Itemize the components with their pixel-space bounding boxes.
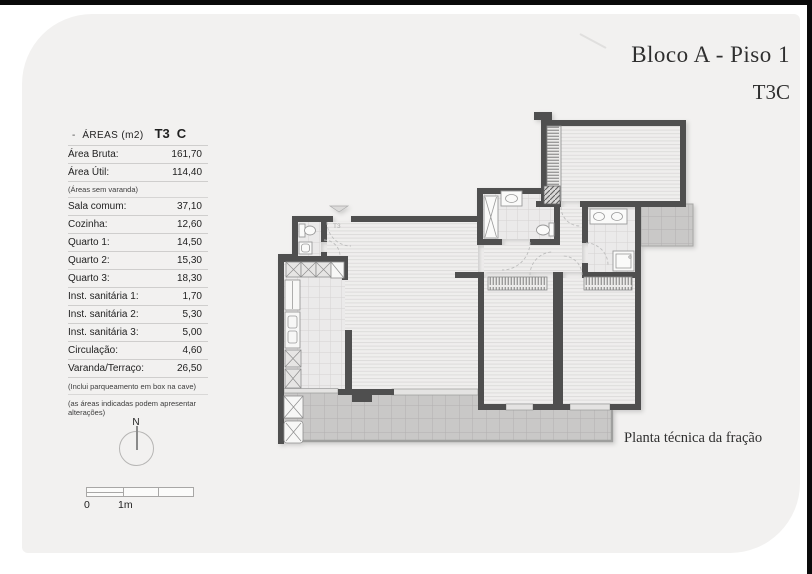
kitchen-balcony-door: [284, 389, 338, 394]
header-title: ÁREAS (m2): [82, 130, 143, 141]
row-value: 18,30: [177, 273, 208, 284]
bedroom1-wardrobe: [488, 277, 547, 290]
bedroom2-wardrobe: [584, 277, 632, 290]
row-value: 14,50: [177, 237, 208, 248]
double-sink-counter: [590, 209, 627, 224]
toilet: [537, 225, 550, 235]
row-label: Quarto 1:: [68, 237, 110, 248]
scan-edge-right: [807, 0, 812, 574]
row-value: 1,70: [183, 291, 208, 302]
table-row: Inst. sanitária 2: 5,30: [68, 306, 208, 324]
sink: [501, 191, 522, 206]
row-value: 114,40: [172, 167, 208, 178]
scale-bar: 0 1m: [86, 487, 194, 511]
row-value: 15,30: [177, 255, 208, 266]
scale-bar-divider: [158, 488, 159, 496]
row-value: 37,10: [177, 201, 208, 212]
table-footnote: (Inclui parqueamento em box na cave): [68, 378, 208, 395]
compass-dial-icon: [119, 431, 154, 466]
row-label: Sala comum:: [68, 201, 126, 212]
vent-shaft: [544, 186, 560, 204]
room-bedroom3-floor: [547, 126, 680, 201]
header-dash: -: [72, 130, 75, 141]
row-label: Inst. sanitária 3:: [68, 327, 139, 338]
row-label: Área Bruta:: [68, 149, 119, 160]
row-label: Varanda/Terraço:: [68, 363, 144, 374]
table-row: Sala comum: 37,10: [68, 198, 208, 216]
entry-label: T3: [333, 223, 341, 230]
scale-bar-half-line: [87, 492, 123, 493]
entry-arrow-icon: [330, 206, 348, 212]
title-block: Bloco A - Piso 1 T3C: [631, 42, 790, 105]
table-row: Quarto 1: 14,50: [68, 234, 208, 252]
table-row: Quarto 3: 18,30: [68, 270, 208, 288]
row-label: Cozinha:: [68, 219, 107, 230]
row-label: Área Útil:: [68, 167, 109, 178]
header-variant: C: [177, 126, 186, 141]
scale-bar-graphic: [86, 487, 194, 497]
scan-edge-top: [0, 0, 812, 5]
table-row: Inst. sanitária 3: 5,00: [68, 324, 208, 342]
table-row: Área Útil: 114,40: [68, 164, 208, 182]
room-bedroom1-floor: [484, 278, 553, 404]
row-label: Quarto 2:: [68, 255, 110, 266]
table-row: Quarto 2: 15,30: [68, 252, 208, 270]
row-value: 12,60: [177, 219, 208, 230]
north-compass: N: [118, 417, 154, 466]
scale-bar-divider: [123, 488, 124, 496]
toilet: [305, 226, 316, 235]
row-value: 161,70: [171, 149, 208, 160]
row-value: 4,60: [183, 345, 208, 356]
table-row: Varanda/Terraço: 26,50: [68, 360, 208, 378]
areas-table: - ÁREAS (m2) T3 C Área Bruta: 161,70 Áre…: [68, 126, 208, 420]
table-row: Área Bruta: 161,70: [68, 146, 208, 164]
table-row: Inst. sanitária 1: 1,70: [68, 288, 208, 306]
floor-plan: T3: [260, 100, 710, 460]
room-bedroom2-floor: [563, 278, 635, 404]
scale-zero-label: 0: [84, 499, 90, 511]
row-label: Circulação:: [68, 345, 118, 356]
table-row: Circulação: 4,60: [68, 342, 208, 360]
living-window: [392, 389, 478, 395]
compass-needle-icon: [136, 426, 138, 450]
table-inline-note: (Áreas sem varanda): [68, 182, 208, 198]
row-value: 26,50: [177, 363, 208, 374]
row-label: Inst. sanitária 1:: [68, 291, 139, 302]
scale-one-meter-label: 1m: [118, 499, 133, 511]
header-typology: T3: [155, 126, 170, 141]
table-row: Cozinha: 12,60: [68, 216, 208, 234]
hallway-floor: [484, 245, 582, 272]
bedroom2-window: [570, 404, 610, 410]
bedroom1-window: [506, 404, 533, 410]
row-value: 5,00: [183, 327, 208, 338]
row-label: Inst. sanitária 2:: [68, 309, 139, 320]
scale-bar-labels: 0 1m: [86, 499, 194, 511]
floor-plan-drawing: T3: [260, 100, 710, 460]
terrace-floor: [641, 204, 693, 246]
page-title: Bloco A - Piso 1: [631, 42, 790, 68]
row-label: Quarto 3:: [68, 273, 110, 284]
areas-table-header: - ÁREAS (m2) T3 C: [68, 126, 208, 146]
brochure-page: Bloco A - Piso 1 T3C - ÁREAS (m2) T3 C Á…: [22, 14, 800, 553]
page-curl-mark: [579, 33, 606, 49]
row-value: 5,30: [183, 309, 208, 320]
